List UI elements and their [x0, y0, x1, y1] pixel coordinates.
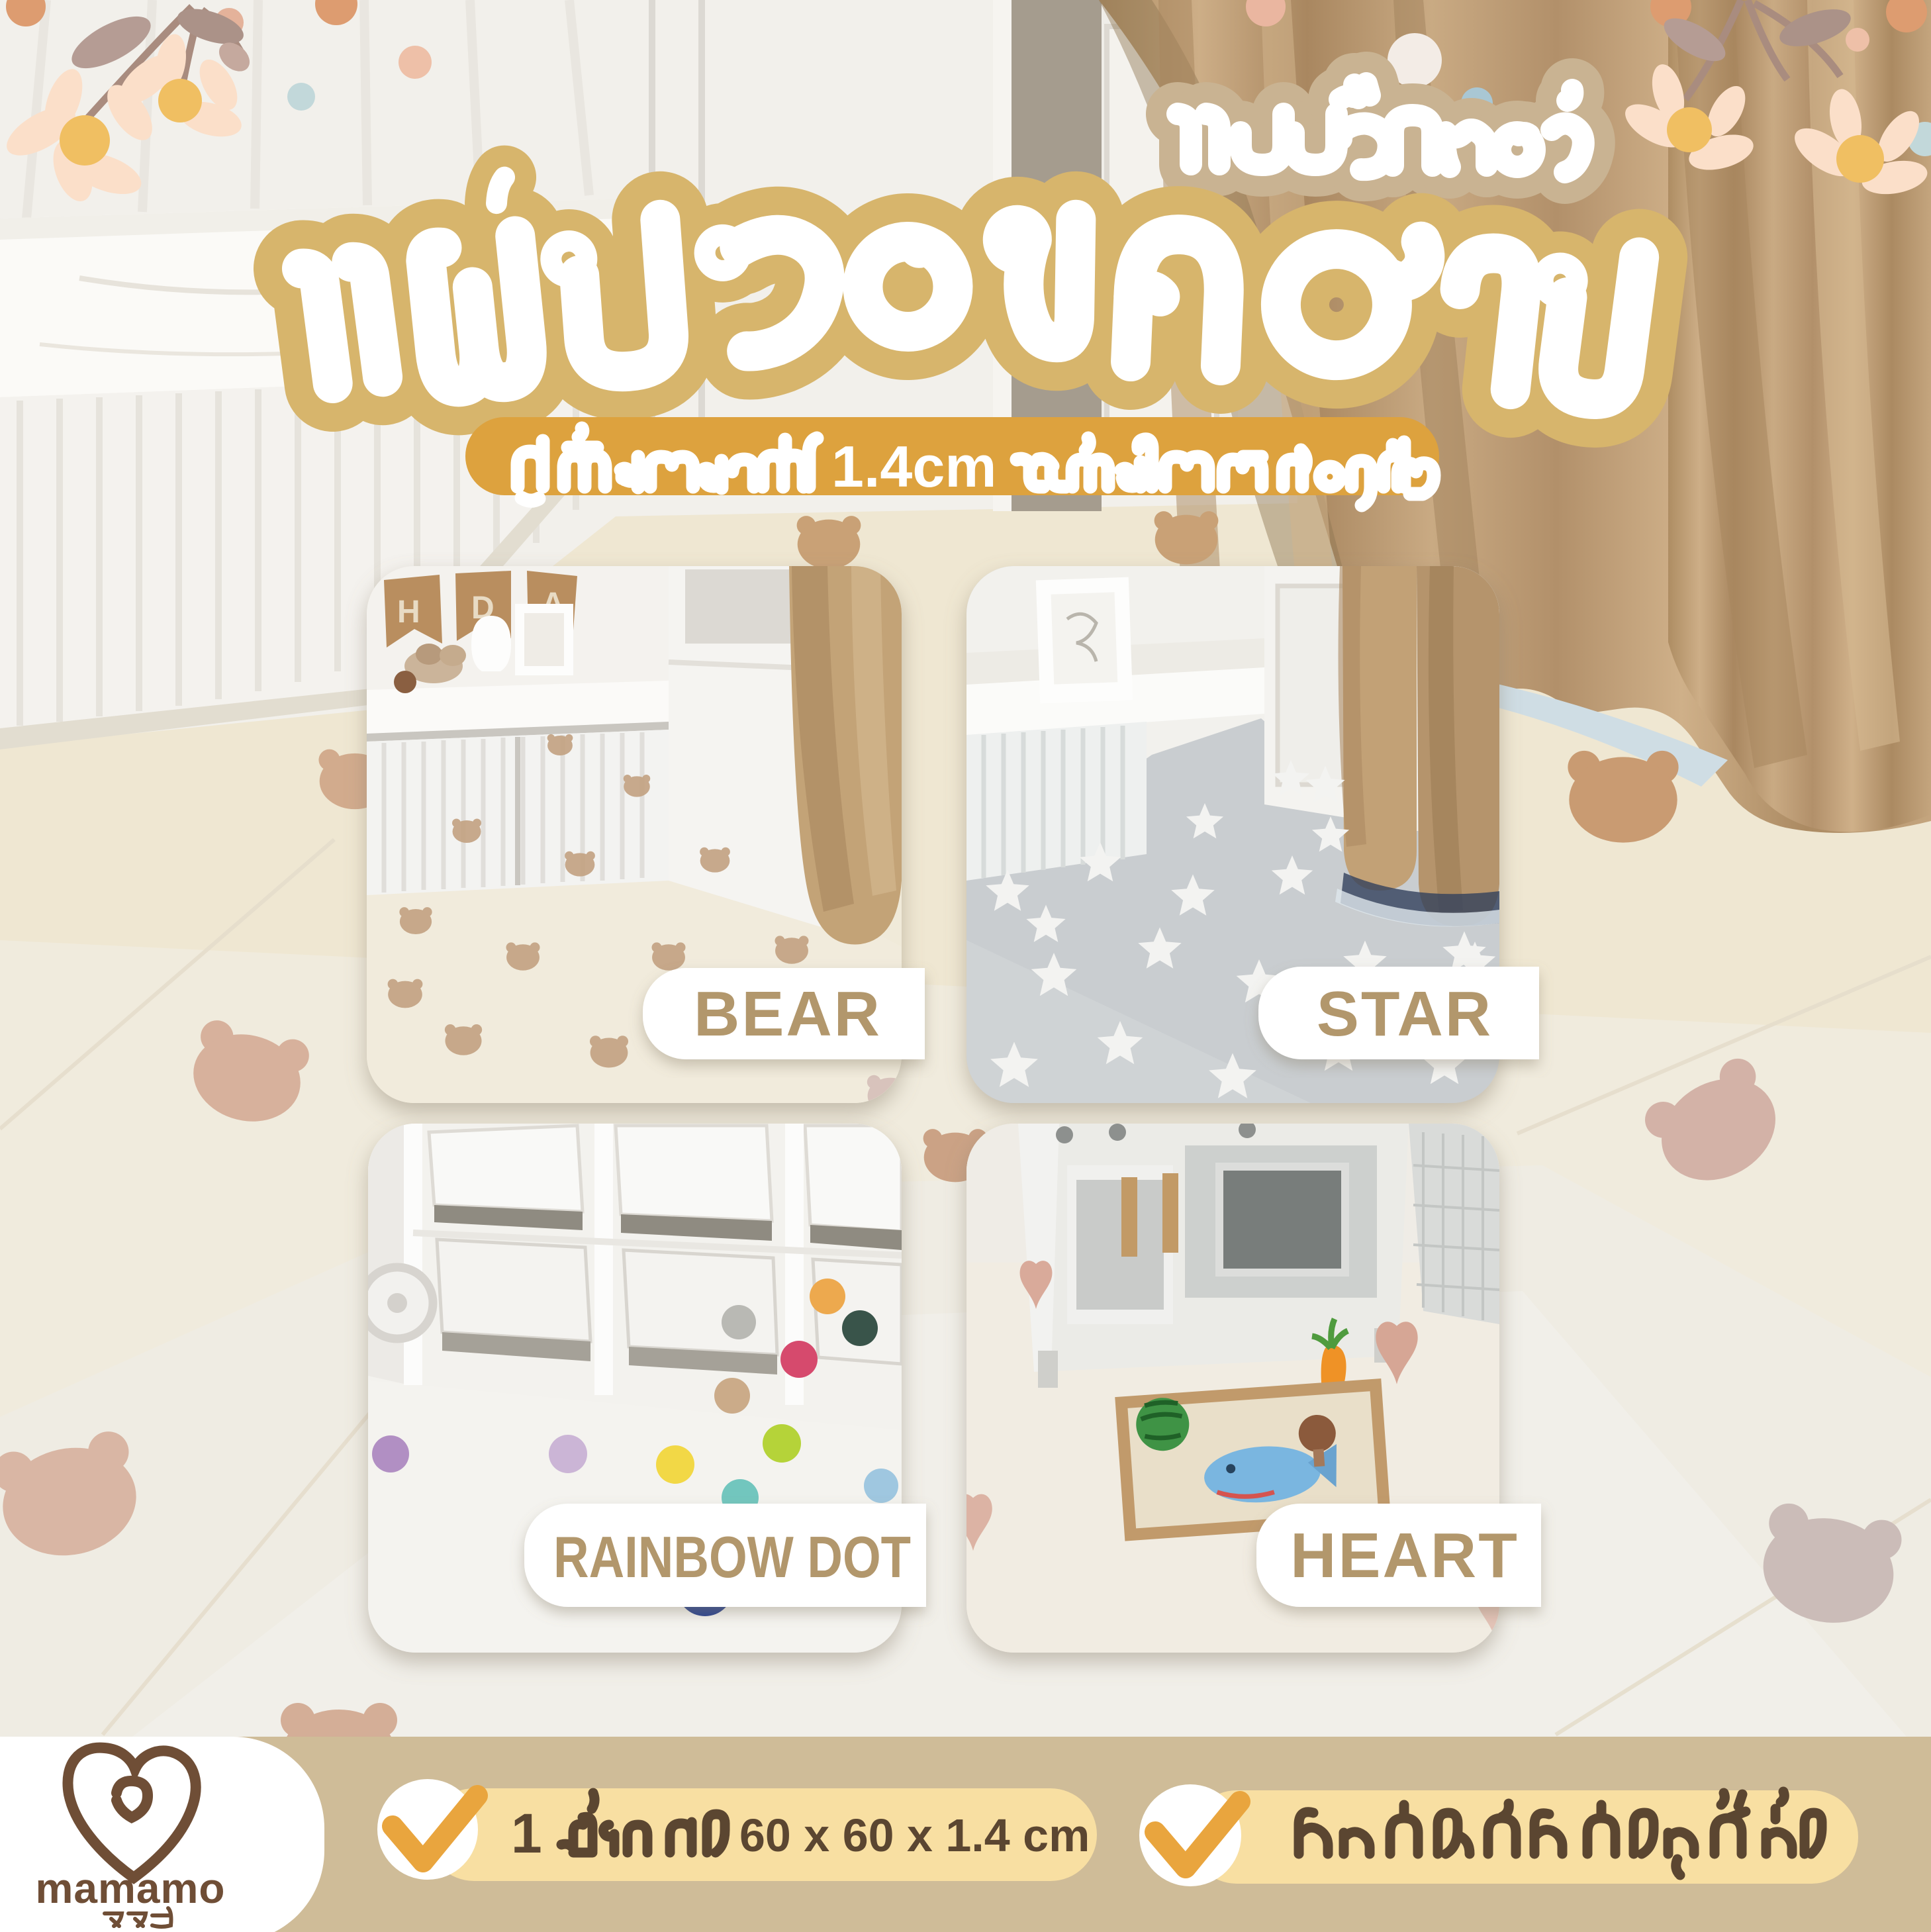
- svg-text:BEAR: BEAR: [694, 979, 882, 1049]
- svg-text:H: H: [397, 595, 420, 630]
- svg-text:mamamo: mamamo: [36, 1864, 226, 1912]
- svg-text:1.4cm: 1.4cm: [831, 434, 997, 499]
- svg-text:STAR: STAR: [1317, 979, 1493, 1049]
- svg-text:HEART: HEART: [1290, 1520, 1519, 1591]
- svg-text:1: 1: [511, 1802, 542, 1864]
- svg-text:RAINBOW DOT: RAINBOW DOT: [553, 1524, 911, 1590]
- svg-text:60 x 60 x 1.4 cm: 60 x 60 x 1.4 cm: [739, 1810, 1090, 1861]
